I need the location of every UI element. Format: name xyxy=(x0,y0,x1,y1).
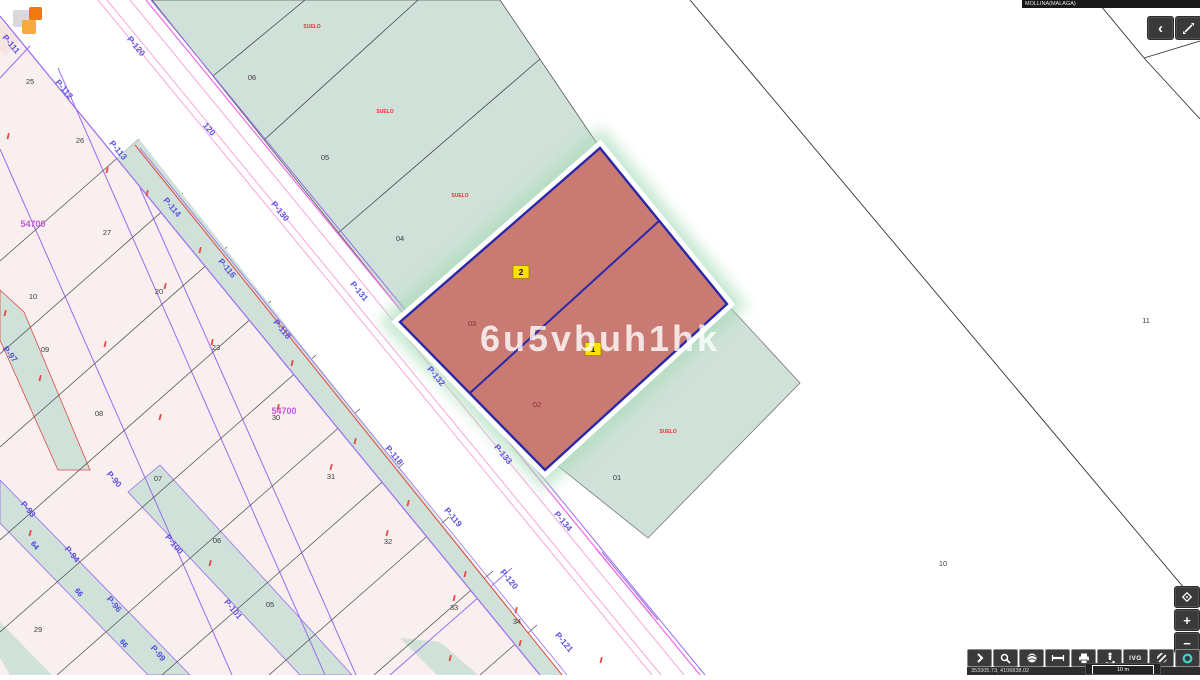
measure-button[interactable] xyxy=(1045,649,1070,667)
result-marker-2[interactable]: 2 xyxy=(513,266,529,279)
scale-label: 10 m xyxy=(1092,665,1154,674)
road-label: P-121 xyxy=(553,630,575,654)
zone-label: 54700 xyxy=(20,219,45,229)
printer-icon xyxy=(1078,653,1090,664)
road-label: P-130 xyxy=(269,199,291,223)
info-icon xyxy=(1182,653,1193,664)
chevron-left-icon: ‹ xyxy=(1158,20,1163,37)
logo-orange-square xyxy=(29,7,42,20)
fullscreen-button[interactable] xyxy=(1175,16,1200,40)
marker-number: 2 xyxy=(519,267,524,277)
search-icon xyxy=(1000,653,1011,664)
back-button[interactable]: ‹ xyxy=(1147,16,1174,40)
parcel-number: 07 xyxy=(154,474,162,483)
municipality-bar: MOLLINA(MALAGA) xyxy=(1022,0,1200,8)
map-stage[interactable]: P-111P-112P-113P-114P-116P-118P-118P-119… xyxy=(0,0,1200,675)
land-use-label: SUELO xyxy=(376,109,393,115)
parcel-number: 06 xyxy=(248,73,256,82)
parcel-number: 11 xyxy=(1142,316,1150,325)
road-casing-fragments xyxy=(596,549,658,620)
parcel-number: 27 xyxy=(103,228,111,237)
marker-number: 1 xyxy=(591,344,596,354)
road-label: 120 xyxy=(201,120,218,138)
search-button[interactable] xyxy=(993,649,1018,667)
parcel-number: 01 xyxy=(613,473,621,482)
zone-label: 54700 xyxy=(271,406,296,416)
boundary-lines-right xyxy=(690,0,1200,607)
parcel-number: 05 xyxy=(266,600,274,609)
info-button[interactable] xyxy=(1175,649,1200,667)
map-toolbar: IVG xyxy=(967,649,1200,667)
parcel-number: 25 xyxy=(26,77,34,86)
parcel-number: 02 xyxy=(533,400,541,409)
logo-light-square xyxy=(22,20,36,34)
land-use-label: SUELO xyxy=(451,193,468,199)
full-extent-button[interactable] xyxy=(1174,586,1200,608)
parcel-number: 09 xyxy=(41,345,49,354)
road-label: P-120 xyxy=(125,34,147,58)
extent-diamond-icon xyxy=(1181,591,1193,603)
parcel-number: 26 xyxy=(76,136,84,145)
basemap-button[interactable] xyxy=(1019,649,1044,667)
parcel-number: 23 xyxy=(212,343,220,352)
parcel-number: 20 xyxy=(155,287,163,296)
construction-mark xyxy=(515,607,518,613)
measure-distance-icon xyxy=(1051,654,1065,662)
parcel-number: 10 xyxy=(939,559,947,568)
parcel-number: 05 xyxy=(321,153,329,162)
land-use-label: SUELO xyxy=(303,24,320,30)
expand-icon xyxy=(1182,22,1195,35)
globe-icon xyxy=(1026,652,1038,664)
road-label: P-131 xyxy=(348,279,370,303)
cadastral-map-canvas[interactable]: P-111P-112P-113P-114P-116P-118P-118P-119… xyxy=(0,0,1200,675)
parcel-number: 06 xyxy=(213,536,221,545)
plus-icon: + xyxy=(1183,613,1191,628)
parcel-number: 08 xyxy=(95,409,103,418)
parcel-number: 32 xyxy=(384,537,392,546)
parcel-number: 29 xyxy=(34,625,42,634)
road-label: P-120 xyxy=(498,567,520,591)
expand-tools-button[interactable] xyxy=(967,649,992,667)
zoom-in-button[interactable]: + xyxy=(1174,609,1200,631)
parcel-number: 04 xyxy=(396,234,404,243)
parcel-number: 03 xyxy=(468,319,476,328)
scale-bar: 10 m xyxy=(1085,663,1161,675)
parcel-number: 33 xyxy=(450,603,458,612)
parcel-number: 34 xyxy=(513,617,521,626)
ivg-label: IVG xyxy=(1129,655,1142,662)
land-use-label: SUELO xyxy=(659,429,676,435)
catastro-logo xyxy=(10,6,50,46)
construction-mark xyxy=(600,657,603,663)
coordinates-bar: 353305.73, 4106838.02 xyxy=(967,667,1200,675)
parcel-number: 10 xyxy=(29,292,37,301)
parcel-number: 31 xyxy=(327,472,335,481)
result-marker-1[interactable]: 1 xyxy=(585,343,601,356)
chevron-right-icon xyxy=(976,653,984,663)
